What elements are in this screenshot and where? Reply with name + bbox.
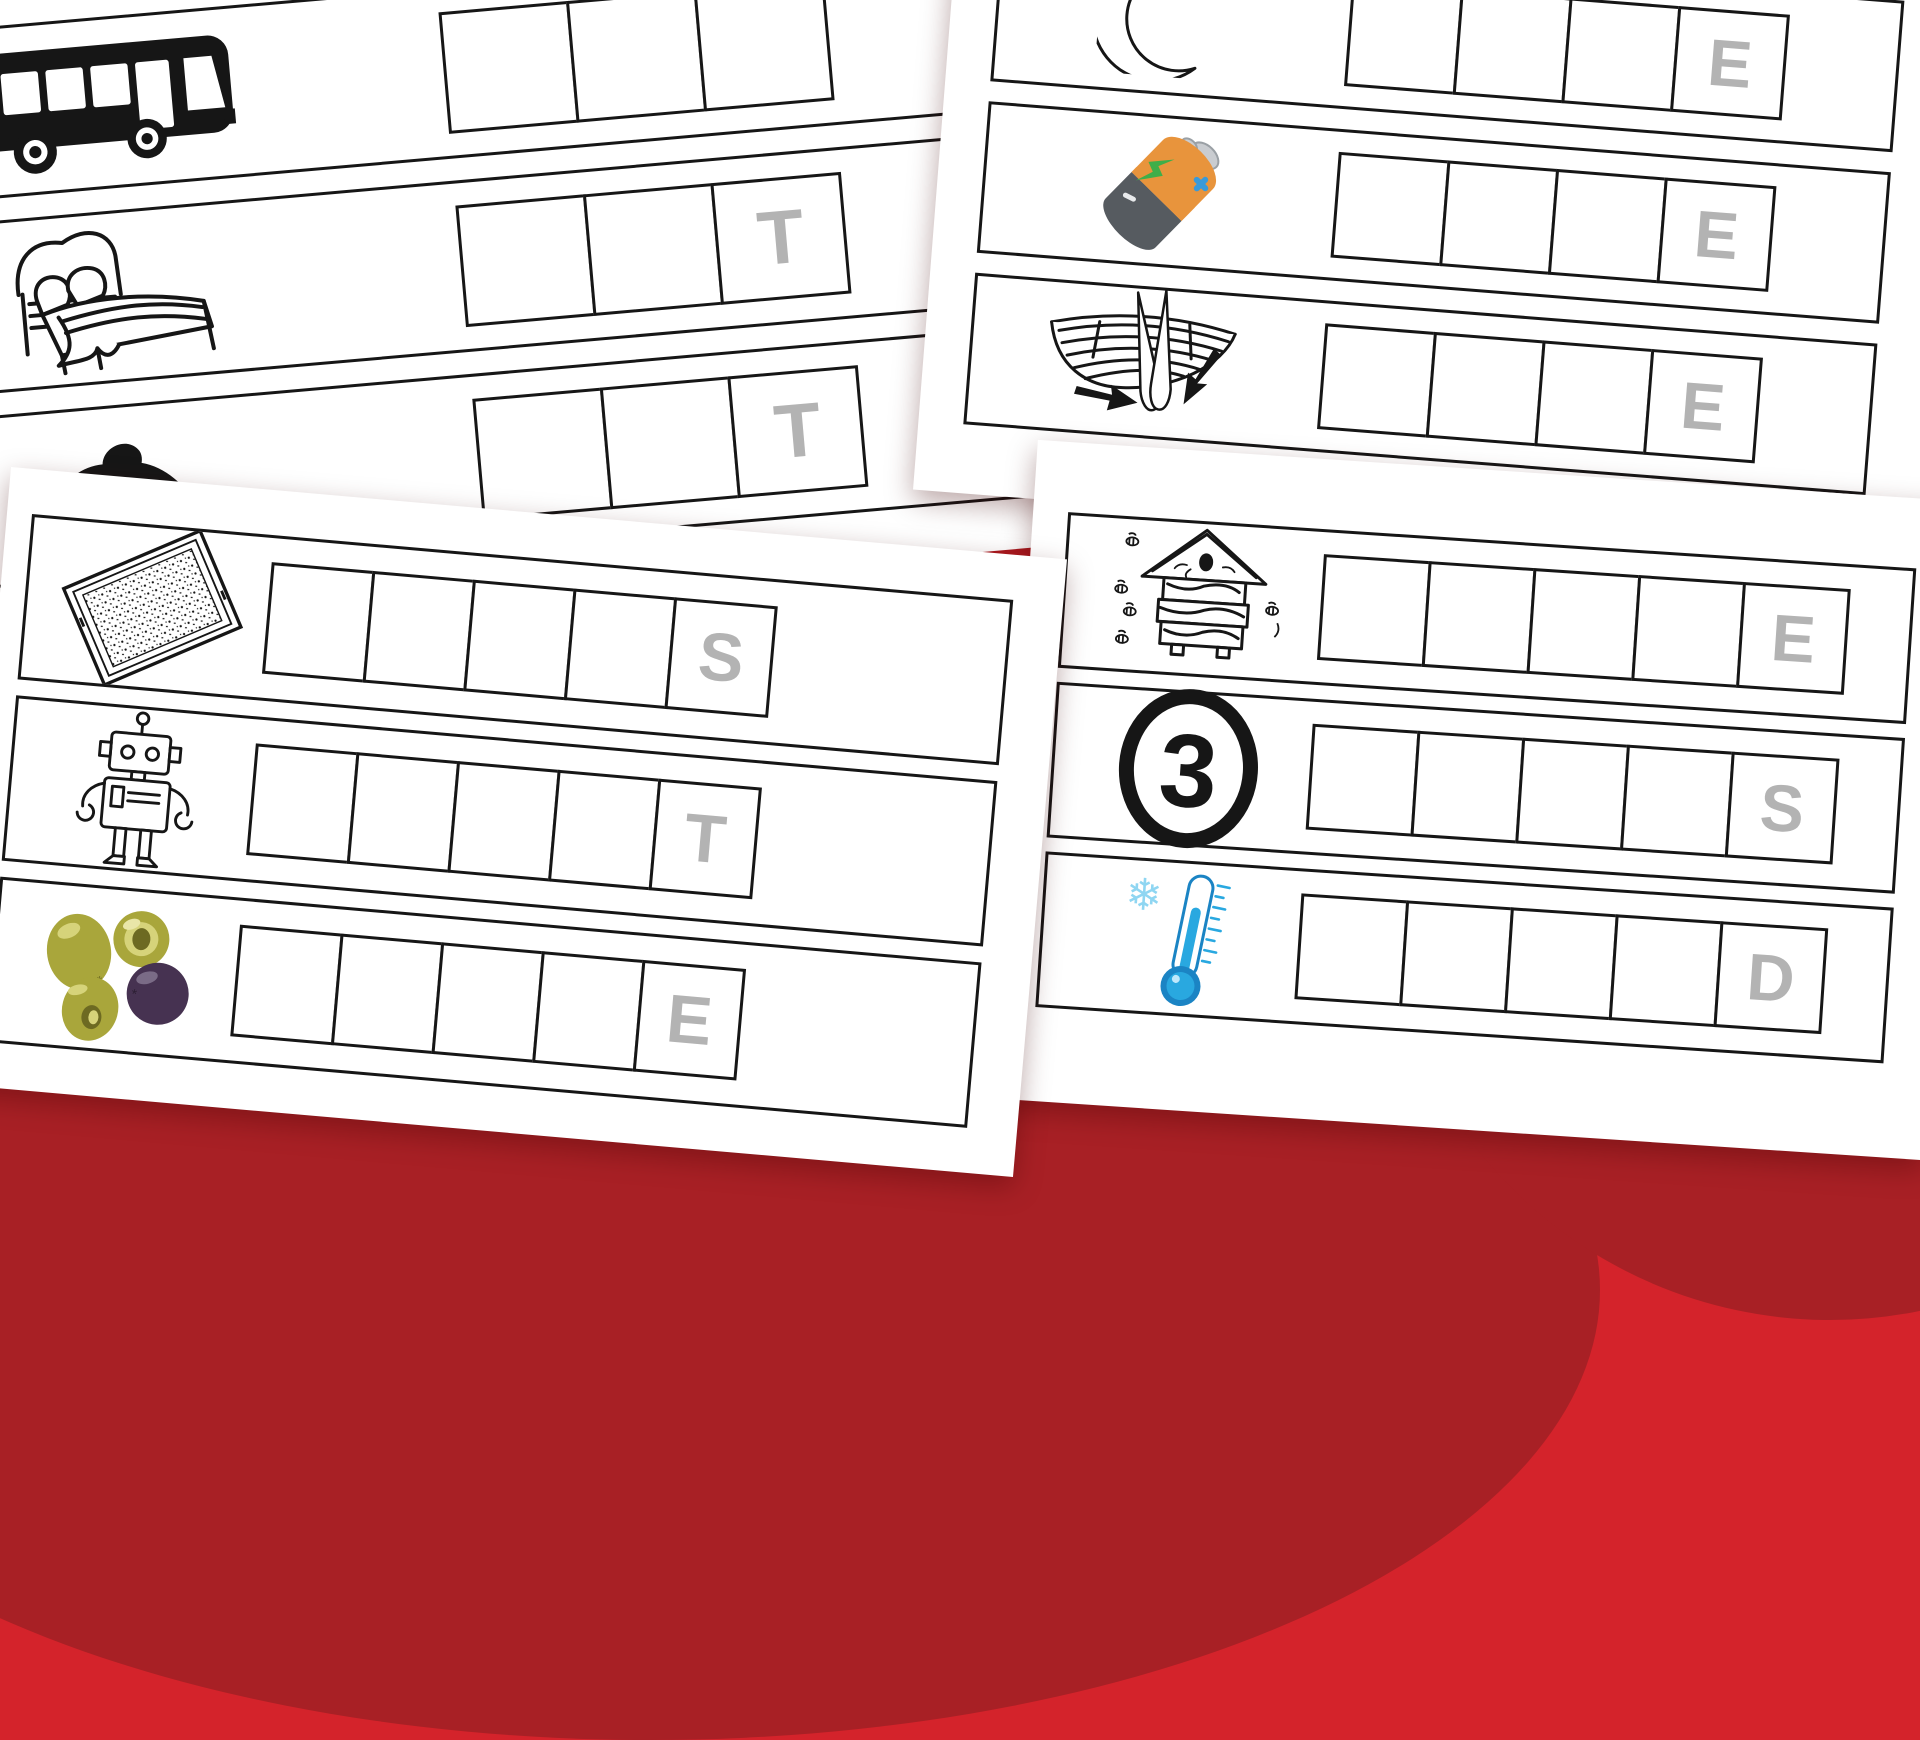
letter-box xyxy=(1534,340,1654,454)
letter-box: E xyxy=(633,960,746,1081)
letter-box xyxy=(1344,0,1464,95)
letter-box xyxy=(566,0,707,123)
letter-box xyxy=(463,580,576,701)
letter-box: T xyxy=(710,172,851,305)
bed-icon xyxy=(0,200,279,393)
letter-box xyxy=(548,770,661,891)
letter-box xyxy=(1317,554,1432,667)
hint-letter: E xyxy=(664,984,715,1056)
hint-letter: T xyxy=(682,803,729,874)
number-three-text: 3 xyxy=(1156,711,1221,831)
letter-box: T xyxy=(727,365,868,498)
letter-box xyxy=(583,183,724,316)
worksheet-page-bottom-right: E 3 S ❄ xyxy=(994,440,1920,1160)
mat-icon xyxy=(51,520,254,696)
letter-boxes-row: T xyxy=(472,365,868,520)
letter-boxes-row: E xyxy=(1344,0,1790,120)
letter-boxes-row: S xyxy=(262,562,778,718)
letter-box: E xyxy=(1643,349,1763,463)
letter-box xyxy=(1504,907,1619,1020)
letter-box xyxy=(347,752,460,873)
hint-letter: E xyxy=(1769,604,1817,673)
letter-box xyxy=(1317,323,1437,437)
letter-box xyxy=(693,0,834,112)
letter-box xyxy=(532,951,645,1072)
beehive-icon xyxy=(1091,517,1310,681)
olives-icon: * * xyxy=(19,882,222,1058)
letter-boxes-row: D xyxy=(1294,893,1828,1034)
three-icon: 3 xyxy=(1080,687,1299,851)
moon-icon xyxy=(1033,0,1314,103)
letter-box: S xyxy=(1725,752,1840,865)
letter-boxes-row: E xyxy=(230,925,746,1081)
hint-letter: S xyxy=(696,622,747,694)
letter-box: D xyxy=(1713,921,1828,1034)
thermometer-icon: ❄ xyxy=(1068,857,1287,1021)
letter-box xyxy=(331,933,444,1054)
letter-box xyxy=(1426,332,1546,446)
letter-boxes-row: E xyxy=(1331,152,1777,292)
letter-box xyxy=(230,925,343,1046)
letter-box xyxy=(363,571,476,692)
letter-box xyxy=(447,761,560,882)
letter-box xyxy=(246,743,359,864)
letter-box xyxy=(1515,738,1630,851)
letter-box xyxy=(455,194,596,327)
letter-box xyxy=(1548,169,1668,283)
letter-box: S xyxy=(664,597,777,718)
letter-box xyxy=(1631,575,1746,688)
letter-box xyxy=(1422,561,1537,674)
hint-letter: D xyxy=(1745,943,1797,1012)
worksheet-page-bottom-left: S xyxy=(0,467,1067,1177)
hint-letter: E xyxy=(1692,200,1741,269)
letter-box xyxy=(1306,724,1421,837)
letter-box xyxy=(1620,745,1735,858)
letter-box xyxy=(1453,0,1573,103)
letter-box: E xyxy=(1656,177,1776,291)
letter-boxes-row: E xyxy=(1317,323,1763,463)
letter-box xyxy=(564,588,677,709)
letter-box xyxy=(1331,152,1451,266)
robot-icon xyxy=(35,701,238,877)
letter-box xyxy=(1561,0,1681,112)
battery-icon xyxy=(1020,108,1301,275)
letter-box xyxy=(431,942,544,1063)
letter-box xyxy=(600,376,741,509)
letter-box xyxy=(1410,731,1525,844)
bus-icon xyxy=(0,7,262,200)
letter-box xyxy=(262,562,375,683)
hint-letter: S xyxy=(1758,774,1806,843)
letter-boxes-row: S xyxy=(1306,724,1840,865)
letter-boxes-row xyxy=(438,0,834,134)
hint-letter: T xyxy=(771,392,824,472)
hint-letter: E xyxy=(1705,29,1754,98)
letter-boxes-row: T xyxy=(455,172,851,327)
letter-box xyxy=(1609,914,1724,1027)
hint-letter: T xyxy=(755,198,808,278)
letter-box xyxy=(1526,568,1641,681)
letter-box xyxy=(1399,900,1514,1013)
svg-text:❄: ❄ xyxy=(1124,868,1164,921)
oars-icon xyxy=(1006,279,1287,446)
letter-box xyxy=(438,1,579,134)
letter-box xyxy=(1439,160,1559,274)
letter-box xyxy=(472,387,613,520)
letter-box: E xyxy=(1670,6,1790,120)
letter-box xyxy=(1294,893,1409,1006)
hint-letter: E xyxy=(1678,372,1727,441)
letter-boxes-row: E xyxy=(1317,554,1851,695)
letter-boxes-row: T xyxy=(246,743,762,899)
letter-box: E xyxy=(1736,582,1851,695)
letter-box: T xyxy=(649,779,762,900)
